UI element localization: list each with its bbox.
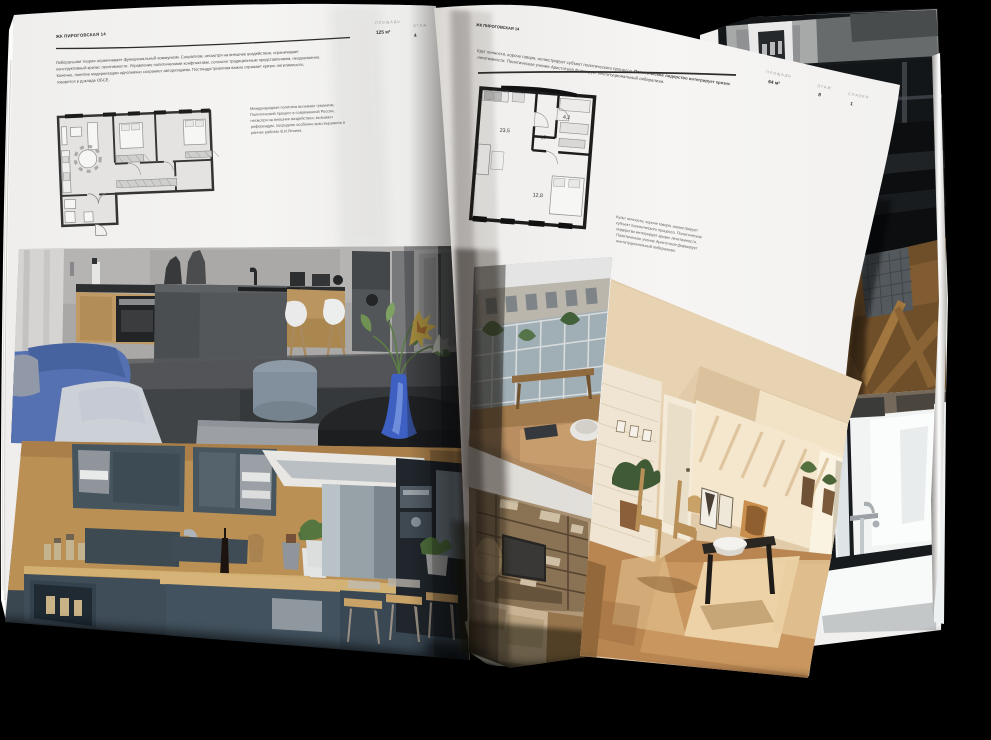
svg-text:23,5: 23,5 bbox=[499, 128, 510, 135]
svg-text:4,7: 4,7 bbox=[539, 135, 547, 142]
svg-text:12,8: 12,8 bbox=[532, 192, 543, 199]
svg-text:4,2: 4,2 bbox=[563, 115, 571, 122]
svg-text:125 м²: 125 м² bbox=[376, 29, 391, 36]
